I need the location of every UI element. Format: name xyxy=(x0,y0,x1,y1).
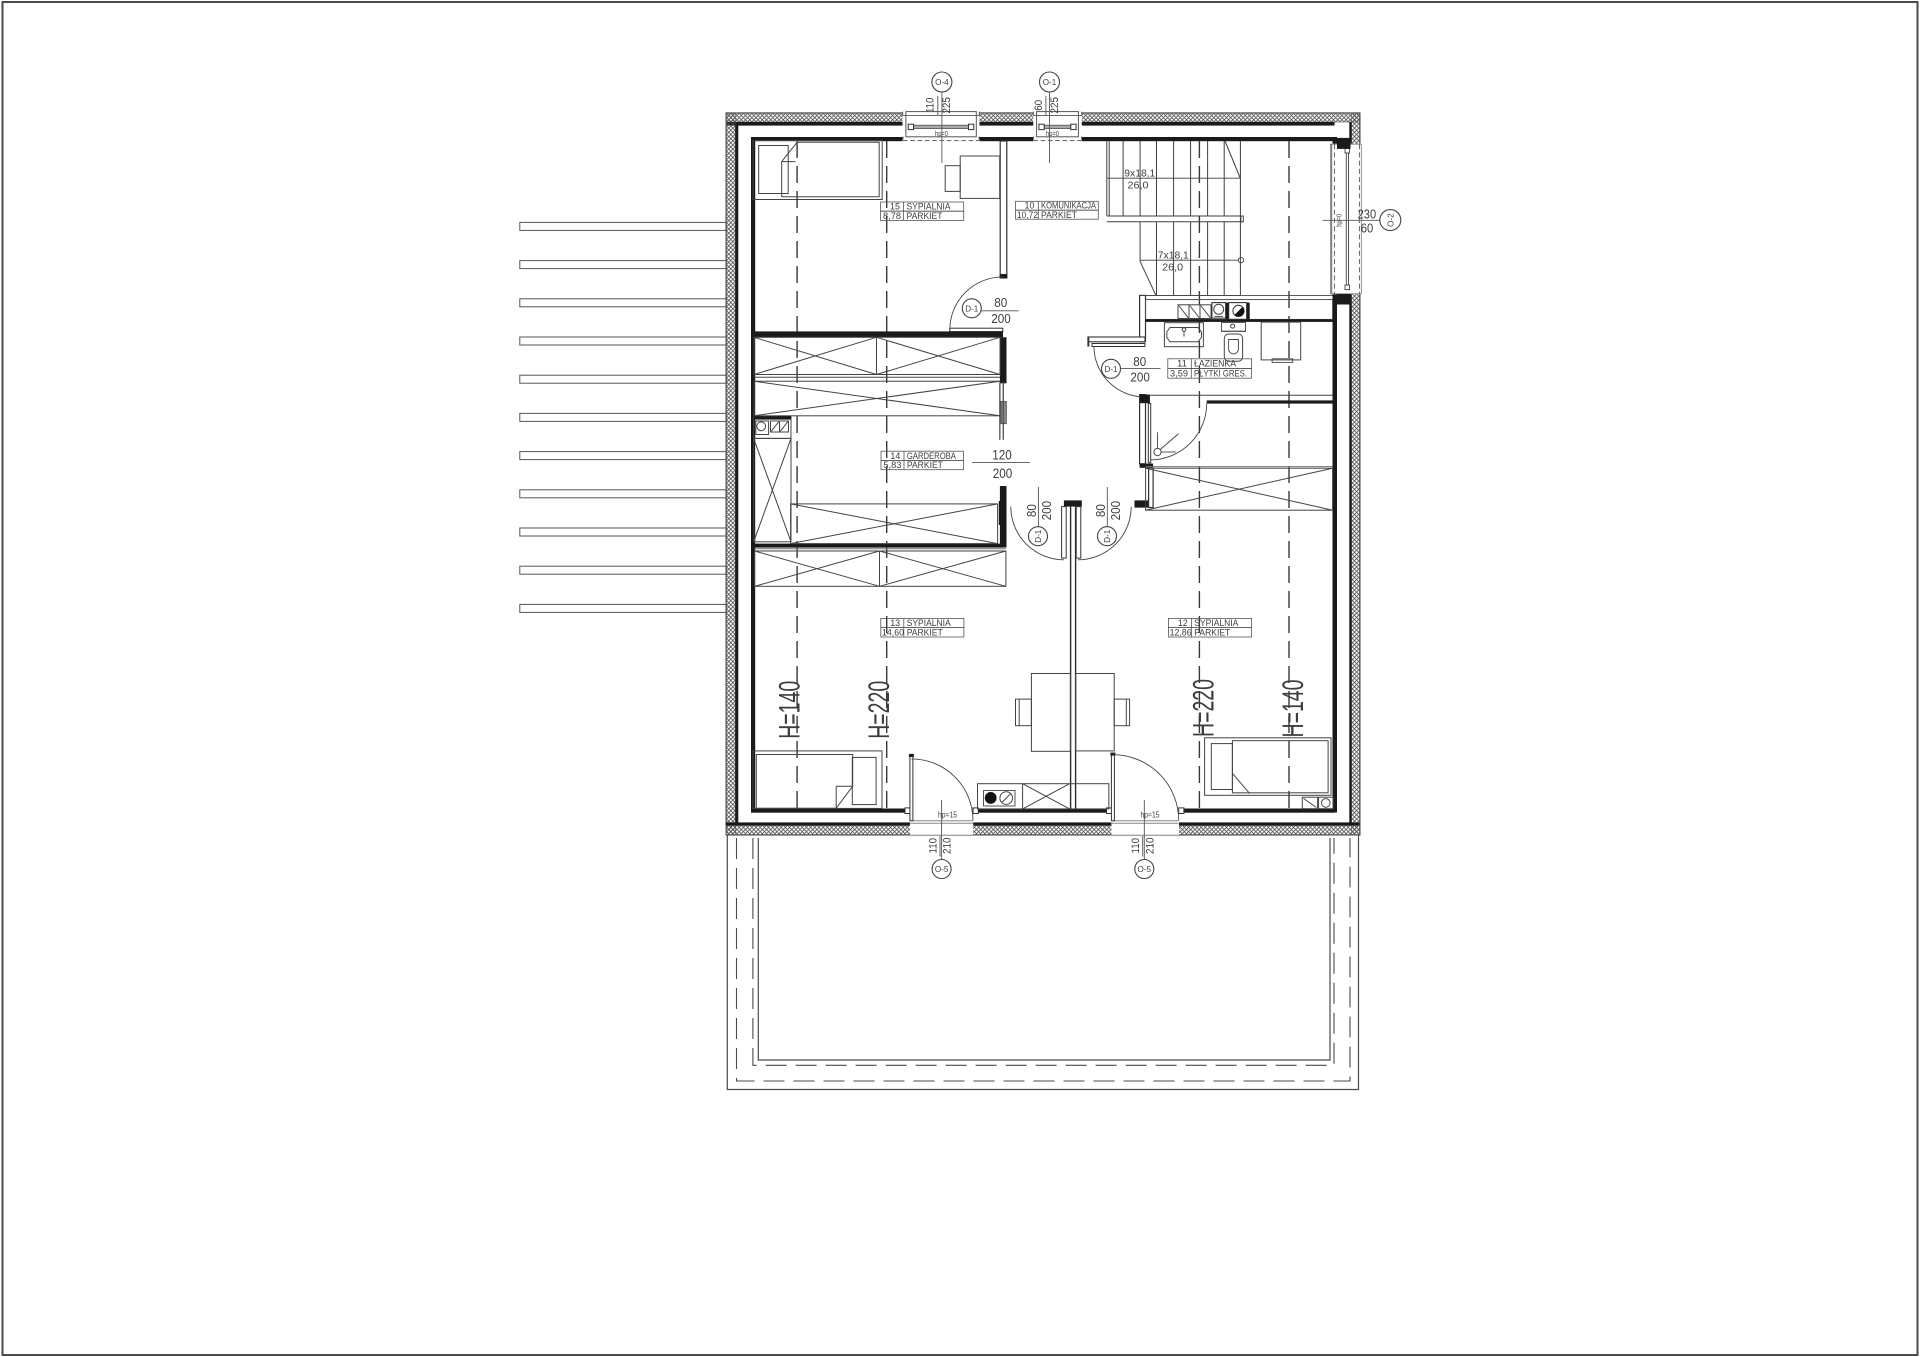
svg-text:200: 200 xyxy=(1130,369,1150,384)
svg-text:O-2: O-2 xyxy=(1386,213,1396,227)
svg-text:5,83: 5,83 xyxy=(883,460,901,471)
svg-text:3,59: 3,59 xyxy=(1170,368,1188,379)
svg-text:26,0: 26,0 xyxy=(1162,262,1183,274)
svg-text:210: 210 xyxy=(1144,837,1156,854)
svg-text:D-1: D-1 xyxy=(1033,529,1043,542)
svg-text:H=220: H=220 xyxy=(1188,679,1221,737)
svg-text:7x18,1: 7x18,1 xyxy=(1158,250,1189,262)
svg-text:14,60: 14,60 xyxy=(882,627,904,638)
svg-text:200: 200 xyxy=(991,311,1011,326)
svg-text:110: 110 xyxy=(1130,838,1142,854)
svg-text:H=220: H=220 xyxy=(863,681,896,739)
svg-text:hp=15: hp=15 xyxy=(938,810,957,820)
svg-text:PARKIET: PARKIET xyxy=(1194,627,1230,638)
svg-text:200: 200 xyxy=(1108,501,1123,520)
svg-text:O-5: O-5 xyxy=(1138,864,1152,874)
svg-text:PŁYTKI GRES.: PŁYTKI GRES. xyxy=(1194,368,1247,379)
svg-text:230: 230 xyxy=(1358,207,1377,222)
svg-text:200: 200 xyxy=(1039,501,1054,520)
svg-text:210: 210 xyxy=(942,837,954,854)
svg-text:120: 120 xyxy=(992,447,1012,463)
svg-text:O-5: O-5 xyxy=(935,864,949,874)
svg-text:80: 80 xyxy=(1024,504,1039,517)
svg-text:110: 110 xyxy=(927,838,939,854)
svg-text:H=140: H=140 xyxy=(773,681,806,739)
svg-text:80: 80 xyxy=(1093,504,1108,517)
svg-text:225: 225 xyxy=(941,97,953,114)
svg-text:D-1: D-1 xyxy=(1102,529,1112,542)
svg-text:10,72: 10,72 xyxy=(1017,210,1038,221)
svg-text:60: 60 xyxy=(1033,100,1045,111)
svg-text:225: 225 xyxy=(1049,97,1061,114)
svg-text:PARKIET: PARKIET xyxy=(907,211,943,222)
svg-text:110: 110 xyxy=(925,98,937,114)
svg-text:PARKIET: PARKIET xyxy=(1041,210,1077,221)
svg-text:80: 80 xyxy=(994,295,1007,310)
svg-text:8,78: 8,78 xyxy=(883,211,901,222)
svg-text:hp=0: hp=0 xyxy=(1046,129,1059,138)
svg-text:PARKIET: PARKIET xyxy=(907,460,943,471)
svg-text:200: 200 xyxy=(993,465,1013,481)
svg-text:60: 60 xyxy=(1361,220,1374,235)
svg-text:O-1: O-1 xyxy=(1043,77,1057,87)
svg-text:hp=0: hp=0 xyxy=(1334,214,1343,227)
svg-text:9x18,1: 9x18,1 xyxy=(1124,168,1155,180)
svg-text:26,0: 26,0 xyxy=(1128,179,1149,191)
svg-text:D-1: D-1 xyxy=(965,304,978,314)
svg-text:H=140: H=140 xyxy=(1277,680,1310,738)
svg-text:PARKIET: PARKIET xyxy=(907,627,943,638)
svg-text:12,86: 12,86 xyxy=(1170,627,1192,638)
svg-text:D-1: D-1 xyxy=(1105,364,1118,374)
svg-text:hp=15: hp=15 xyxy=(1141,810,1160,820)
svg-text:80: 80 xyxy=(1133,354,1146,369)
svg-text:O-4: O-4 xyxy=(935,77,949,87)
